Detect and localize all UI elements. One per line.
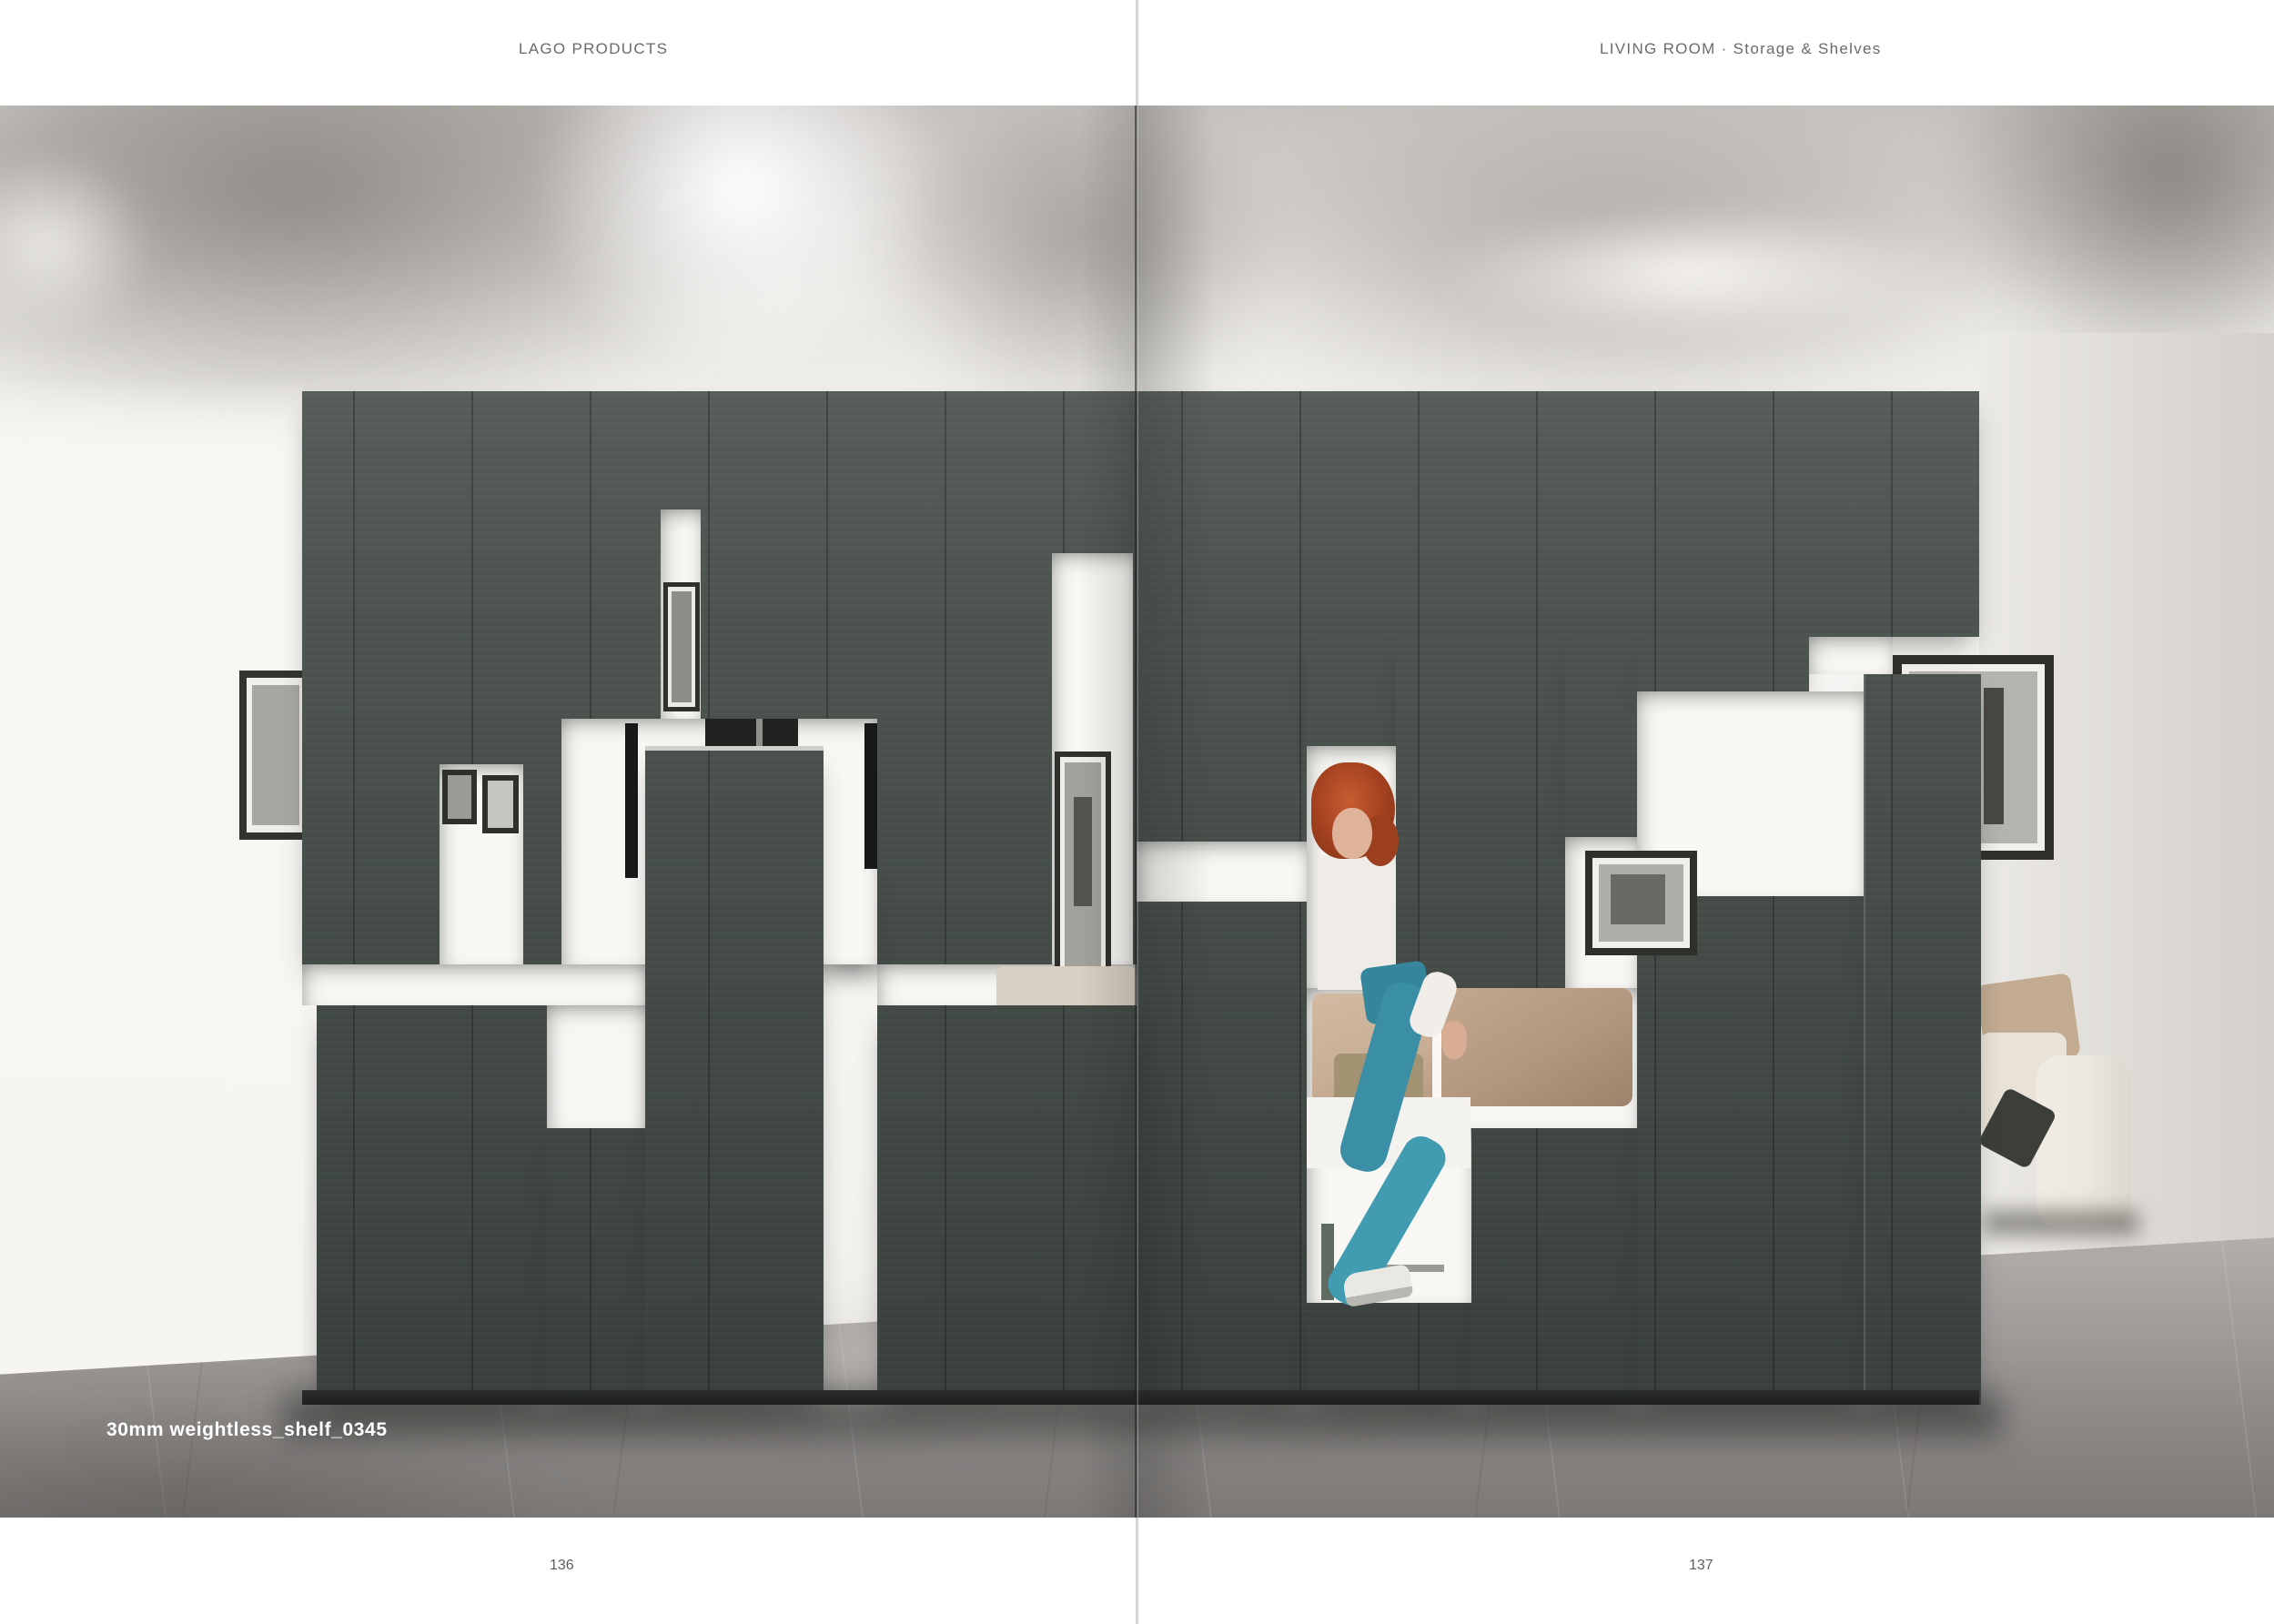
page-fold-bottom	[1136, 1518, 1138, 1624]
woman-face	[1332, 808, 1372, 859]
fold-line-photo	[1135, 106, 1138, 1518]
woman-hand	[1441, 1021, 1467, 1059]
photo-caption: 30mm weightless_shelf_0345	[106, 1419, 388, 1441]
cutout-sliver-right	[1809, 637, 1893, 674]
slot-frame-photo	[672, 591, 692, 702]
header-right-section-title: LIVING ROOM · Storage & Shelves	[1600, 40, 1882, 58]
small-frame-a-photo	[448, 775, 471, 819]
gutter-shade-left	[1079, 106, 1137, 1518]
wall-frame-right-figure	[1984, 688, 2004, 824]
unit-lower-left-block	[317, 1005, 547, 1405]
product-photo: 30mm weightless_shelf_0345	[0, 106, 2274, 1518]
ceiling-streak-right	[1429, 206, 1956, 342]
unit-col-above-woman	[1307, 637, 1396, 746]
header-left-running-title: LAGO PRODUCTS	[519, 40, 668, 58]
pillar-top-edge	[645, 746, 824, 751]
page-fold-top	[1136, 0, 1138, 106]
unit-step-block-low	[1471, 1128, 1637, 1405]
bracket-bar-right	[864, 723, 877, 869]
unit-step-block-mid	[1637, 896, 1864, 1405]
page-number-right: 137	[1689, 1558, 1713, 1574]
cutout-band-left	[302, 964, 645, 1005]
bracket-bar-left	[625, 723, 638, 878]
unit-col-mid-right	[1565, 637, 1637, 837]
page-number-left: 136	[550, 1558, 574, 1574]
unit-lower-step-left	[547, 1128, 645, 1405]
gutter-shade-right	[1137, 106, 1213, 1518]
sofa-cushion-right	[1441, 988, 1632, 1106]
right-sofa-arm	[2036, 1055, 2131, 1228]
small-frame-b-photo	[488, 781, 513, 828]
shelf-object-camera	[705, 719, 798, 746]
cutout-notch-left	[547, 1005, 645, 1128]
unit-upper-mass-right	[1137, 391, 1979, 637]
nook-frame-print	[1611, 874, 1665, 924]
left-wall	[0, 378, 304, 1388]
right-sofa-base-shadow	[1984, 1210, 2138, 1236]
wall-frame-left-photo	[252, 685, 299, 825]
unit-pillar	[645, 746, 824, 1405]
unit-step-block-tall	[1864, 674, 1981, 1405]
unit-torso-panel	[1396, 637, 1565, 988]
catalog-spread: LAGO PRODUCTS LIVING ROOM · Storage & Sh…	[0, 0, 2274, 1624]
unit-col-far-right-upper	[1637, 637, 1809, 691]
